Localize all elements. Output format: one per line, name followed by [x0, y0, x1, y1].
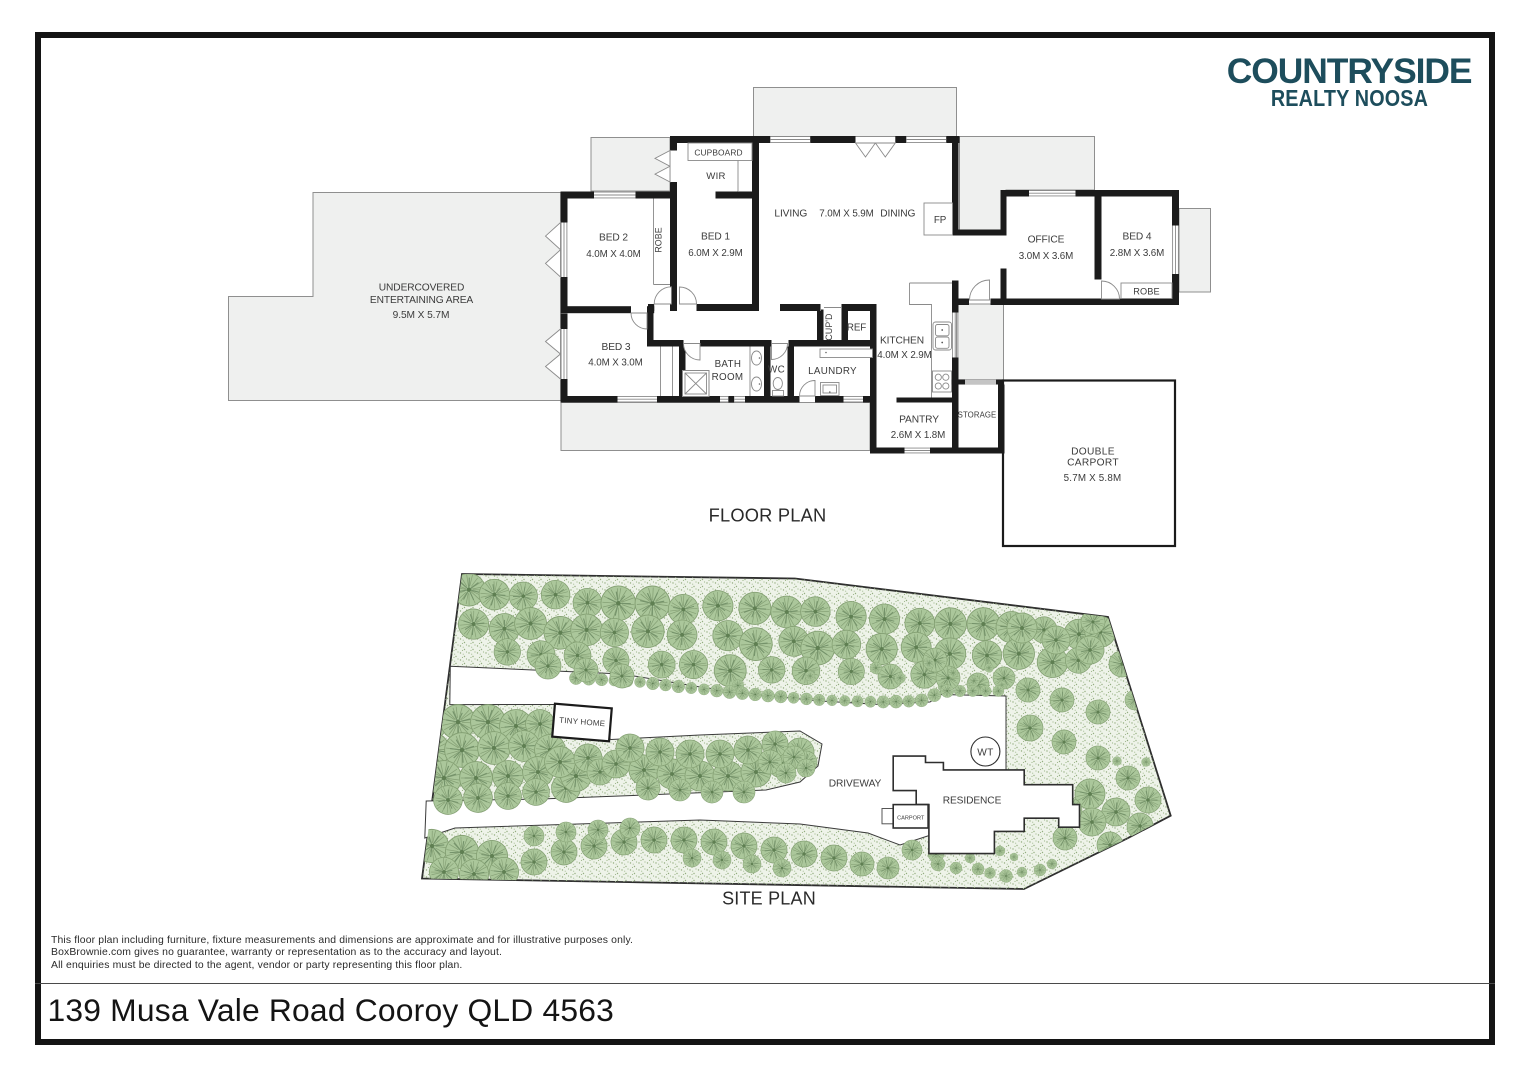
svg-text:LAUNDRY: LAUNDRY — [808, 366, 857, 377]
svg-text:UNDERCOVERED: UNDERCOVERED — [379, 283, 464, 294]
svg-text:WIR: WIR — [706, 171, 726, 182]
svg-text:BED 4: BED 4 — [1123, 232, 1152, 243]
svg-text:6.0M X 2.9M: 6.0M X 2.9M — [688, 248, 742, 259]
svg-text:CUP'D: CUP'D — [824, 313, 834, 340]
svg-text:ENTERTAINING AREA: ENTERTAINING AREA — [370, 295, 474, 306]
svg-text:4.0M X 3.0M: 4.0M X 3.0M — [588, 358, 642, 369]
svg-text:PANTRY: PANTRY — [899, 415, 939, 426]
svg-text:FP: FP — [934, 215, 947, 226]
svg-text:FLOOR PLAN: FLOOR PLAN — [709, 505, 827, 526]
svg-text:7.0M X 5.9M: 7.0M X 5.9M — [819, 209, 873, 220]
svg-text:REF: REF — [847, 323, 866, 334]
svg-text:2.8M X 3.6M: 2.8M X 3.6M — [1110, 248, 1164, 259]
svg-text:ROOM: ROOM — [712, 372, 744, 383]
svg-text:BED 1: BED 1 — [701, 232, 730, 243]
svg-text:ROBE: ROBE — [654, 227, 664, 252]
svg-text:KITCHEN: KITCHEN — [880, 336, 924, 347]
svg-text:9.5M X 5.7M: 9.5M X 5.7M — [393, 310, 450, 321]
svg-text:WC: WC — [768, 365, 785, 376]
svg-text:LIVING: LIVING — [774, 209, 807, 220]
svg-text:DINING: DINING — [880, 209, 915, 220]
svg-text:BATH: BATH — [715, 359, 742, 370]
svg-text:WT: WT — [977, 747, 993, 758]
svg-text:RESIDENCE: RESIDENCE — [943, 796, 1002, 807]
svg-text:5.7M X 5.8M: 5.7M X 5.8M — [1064, 473, 1122, 484]
svg-text:ROBE: ROBE — [1133, 287, 1159, 297]
svg-text:SITE PLAN: SITE PLAN — [722, 889, 816, 909]
svg-text:OFFICE: OFFICE — [1028, 235, 1065, 246]
svg-text:STORAGE: STORAGE — [958, 411, 997, 420]
svg-text:BED 3: BED 3 — [602, 342, 631, 353]
svg-text:2.6M X 1.8M: 2.6M X 1.8M — [891, 430, 945, 441]
svg-text:DRIVEWAY: DRIVEWAY — [829, 779, 882, 790]
svg-text:BED 2: BED 2 — [599, 233, 628, 244]
svg-text:CARPORT: CARPORT — [1067, 458, 1119, 469]
svg-text:4.0M X 4.0M: 4.0M X 4.0M — [586, 249, 640, 260]
svg-text:DOUBLE: DOUBLE — [1071, 447, 1115, 458]
svg-text:CUPBOARD: CUPBOARD — [694, 148, 742, 158]
svg-text:3.0M X 3.6M: 3.0M X 3.6M — [1019, 251, 1073, 262]
svg-text:4.0M X 2.9M: 4.0M X 2.9M — [877, 350, 931, 361]
svg-text:CARPORT: CARPORT — [897, 816, 925, 822]
